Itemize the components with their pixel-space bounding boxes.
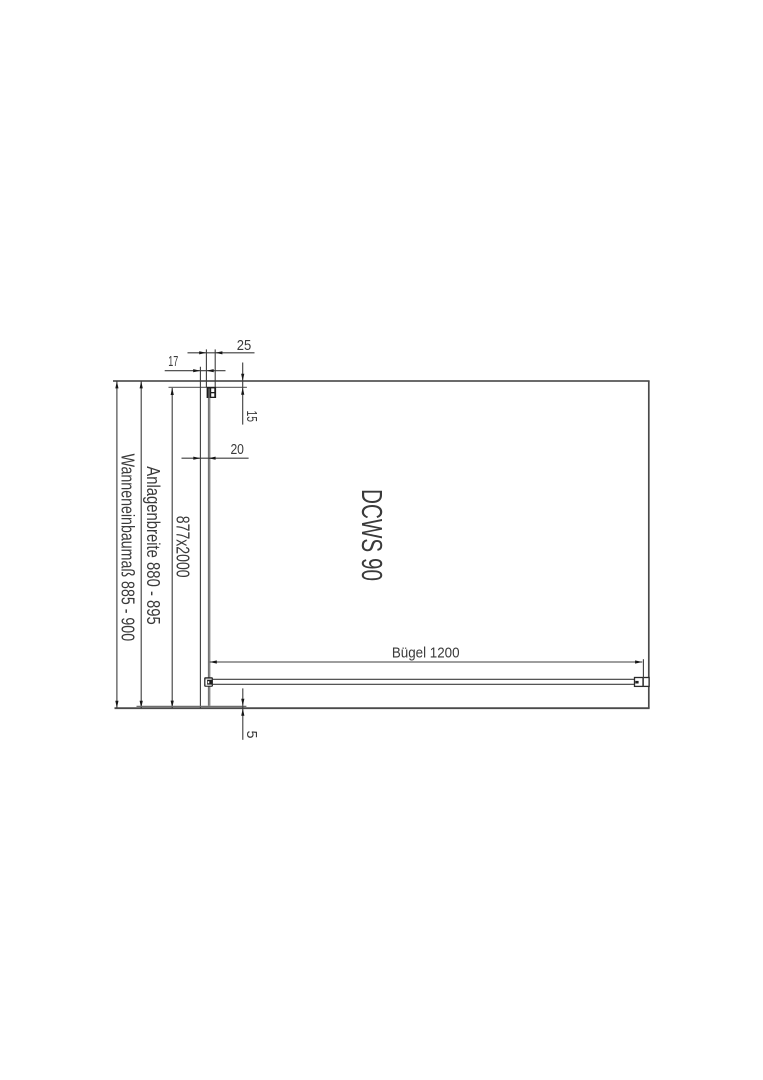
svg-text:17: 17 — [168, 354, 178, 370]
svg-text:877x2000: 877x2000 — [173, 516, 193, 578]
svg-text:5: 5 — [243, 731, 259, 739]
svg-text:15: 15 — [243, 411, 259, 423]
svg-text:25: 25 — [237, 338, 252, 354]
svg-text:Wanneneinbaumaß 885 - 900: Wanneneinbaumaß 885 - 900 — [117, 454, 137, 641]
svg-text:Bügel 1200: Bügel 1200 — [392, 644, 460, 661]
svg-text:20: 20 — [230, 442, 244, 458]
svg-text:Anlagenbreite 880 - 895: Anlagenbreite 880 - 895 — [143, 466, 163, 625]
svg-text:DCWS 90: DCWS 90 — [355, 489, 387, 581]
